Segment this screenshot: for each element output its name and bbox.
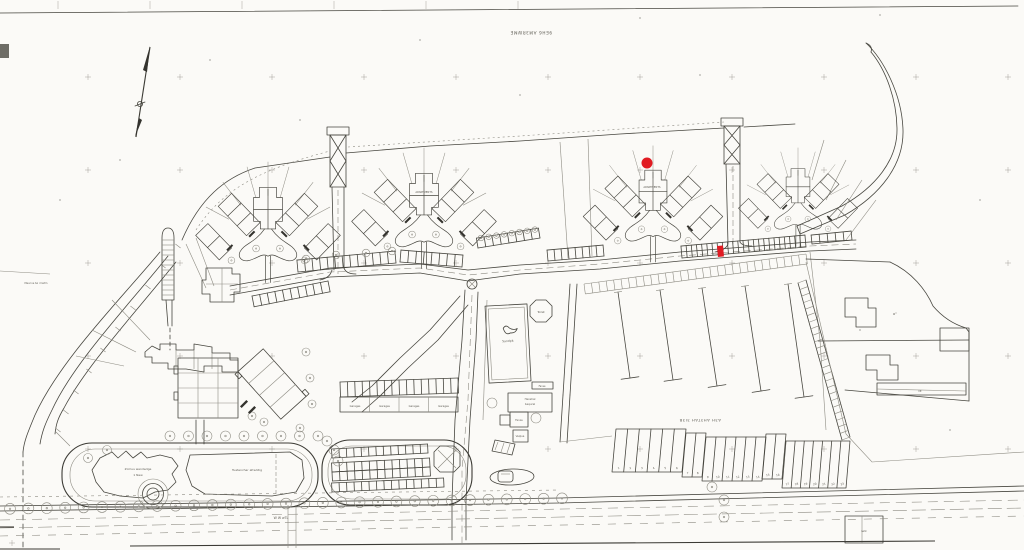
site-plan-drawing: APARTMENTSAPARTMENTSSandpitToiletHexshal…: [0, 0, 1024, 550]
svg-text:Sandpit: Sandpit: [502, 339, 514, 344]
svg-text:3: 3: [641, 466, 644, 470]
street-labels: 9EH6 AM3RWMEA3H AH3TAH 3I3BMea lne tw i …: [25, 30, 721, 423]
svg-text:15: 15: [766, 473, 771, 478]
svg-text:17: 17: [785, 482, 790, 487]
railway-lines: W W wTL: [0, 486, 1024, 549]
svg-text:16: 16: [776, 473, 781, 478]
paper-marks: [0, 1, 1018, 546]
svg-text:Garages: Garages: [379, 404, 390, 408]
garage-band: GaragesGaragesGaragesGarages: [340, 378, 459, 412]
svg-text:9EH6 AM3RWME: 9EH6 AM3RWME: [510, 30, 552, 35]
parking-field: [560, 252, 826, 443]
svg-text:Zcmus wandedge: Zcmus wandedge: [125, 467, 152, 471]
svg-text:4: 4: [652, 466, 655, 470]
svg-text:7: 7: [686, 471, 689, 475]
site-plan: APARTMENTSAPARTMENTSSandpitToiletHexshal…: [0, 0, 1024, 550]
svg-text:10: 10: [716, 475, 721, 480]
garage-row: 1234567891011121314151617181920212223: [612, 429, 850, 488]
svg-text:11: 11: [726, 475, 731, 480]
tree-row-racetrack: [84, 431, 344, 466]
svg-text:o'': o'': [893, 312, 897, 316]
buildings-complex: HexshalbequrelFanxeVeqluaFanse: [487, 382, 553, 486]
cluster-b: [352, 148, 497, 269]
right-plot: lllto''Iwlk: [798, 259, 1024, 543]
cluster-a: [196, 162, 341, 283]
svg-text:Fanse: Fanse: [539, 385, 546, 388]
parking-space-marker: [717, 245, 724, 256]
svg-text:Iwlk: Iwlk: [861, 529, 867, 533]
svg-text:6: 6: [676, 466, 679, 470]
sandpit-area: Sandpit: [485, 304, 531, 383]
svg-text:19: 19: [803, 482, 808, 487]
cluster-e: [76, 300, 316, 444]
svg-text:Hexshal: Hexshal: [525, 397, 536, 401]
svg-text:Fanxe: Fanxe: [515, 418, 523, 422]
gateway-north-2: [715, 118, 752, 252]
svg-text:APARTMENTS: APARTMENTS: [415, 190, 433, 194]
svg-text:22: 22: [831, 482, 836, 487]
svg-text:21: 21: [822, 482, 827, 487]
spine-parking-rows: [252, 227, 852, 307]
svg-text:8: 8: [696, 471, 699, 475]
svg-text:23: 23: [840, 482, 845, 487]
svg-text:Veqlua: Veqlua: [516, 434, 525, 438]
svg-text:Mea lne tw i hwtm: Mea lne tw i hwtm: [25, 281, 49, 285]
svg-text:Garages: Garages: [409, 404, 420, 408]
svg-text:2: 2: [629, 466, 632, 470]
svg-text:12: 12: [736, 475, 741, 480]
svg-text:lllt: lllt: [918, 389, 921, 393]
north-arrow: [135, 46, 150, 137]
plot-location-marker: [642, 158, 653, 169]
toilet-octagon: Toilet: [530, 300, 552, 322]
svg-text:Toilet: Toilet: [536, 310, 545, 314]
svg-text:A3H AH3TAH 3I3B: A3H AH3TAH 3I3B: [679, 418, 721, 423]
svg-text:1 New: 1 New: [133, 473, 143, 477]
svg-text:W W wTL: W W wTL: [274, 516, 289, 520]
svg-text:14: 14: [756, 475, 761, 480]
svg-text:20: 20: [813, 482, 818, 487]
svg-text:13: 13: [746, 475, 751, 480]
svg-text:5: 5: [664, 466, 667, 470]
svg-text:Garages: Garages: [350, 404, 361, 408]
svg-text:Garages: Garages: [438, 404, 449, 408]
svg-text:bequrel: bequrel: [525, 402, 535, 406]
svg-text:1: 1: [617, 466, 620, 470]
swoosh-strip: [797, 43, 903, 240]
racetrack-landscape: Zcmus wandedge1 NewTuatenchar afreddig: [62, 443, 318, 509]
spine-road: [230, 240, 856, 295]
svg-text:APARTMENTS: APARTMENTS: [643, 185, 661, 189]
svg-text:18: 18: [794, 482, 799, 487]
svg-text:Tuatenchar afreddig: Tuatenchar afreddig: [231, 468, 262, 472]
svg-text:9: 9: [706, 475, 709, 479]
